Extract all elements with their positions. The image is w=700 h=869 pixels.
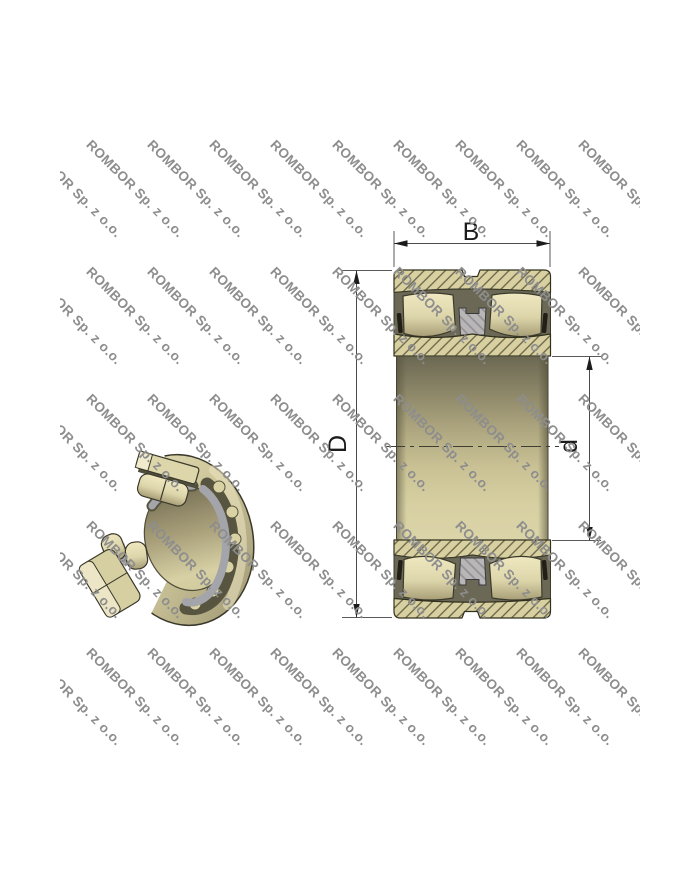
inner-ring-top-section [394,334,551,356]
bearing-figure: B D d [0,0,700,869]
roller-bump [213,481,225,493]
arrowhead-down [353,604,359,618]
roller-bump [229,533,241,545]
iso-view [48,436,269,657]
dim-label-width: B [463,218,480,246]
arrowhead-up [586,357,592,371]
dim-label-bore-diameter: d [555,439,583,453]
product-image-canvas: B D d [0,0,700,869]
arm-roller [124,541,149,571]
arrowhead-left [394,240,408,246]
section-view [385,270,559,618]
roller-top-left [403,293,456,337]
arrowhead-up [353,271,359,285]
bore-shade-right [538,356,548,540]
roller-bottom-left [403,556,456,600]
arrowhead-right [537,240,551,246]
dim-label-outer-diameter: D [324,435,352,453]
roller-bump [226,506,238,518]
dim-B: B [394,218,550,267]
roller-bottom-right [490,556,543,600]
arrowhead-down [586,527,592,541]
bore-shade-left [397,356,407,540]
dim-D: D [324,271,392,618]
dim-d: d [552,357,601,541]
bore-surface [397,356,549,540]
roller-top-right [490,293,543,337]
